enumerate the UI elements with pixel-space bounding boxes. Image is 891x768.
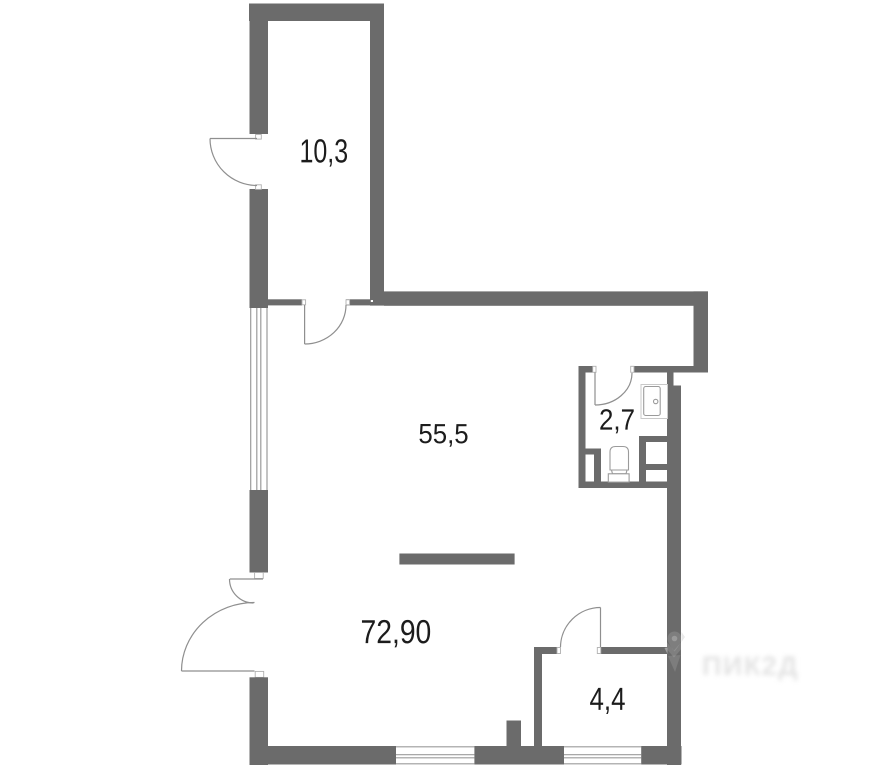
svg-text:55,5: 55,5	[418, 418, 468, 449]
svg-text:ПИК2Д: ПИК2Д	[702, 651, 799, 681]
svg-text:4,4: 4,4	[589, 682, 625, 717]
svg-text:72,90: 72,90	[360, 613, 431, 651]
svg-text:10,3: 10,3	[300, 133, 349, 170]
svg-text:2,7: 2,7	[599, 403, 635, 436]
